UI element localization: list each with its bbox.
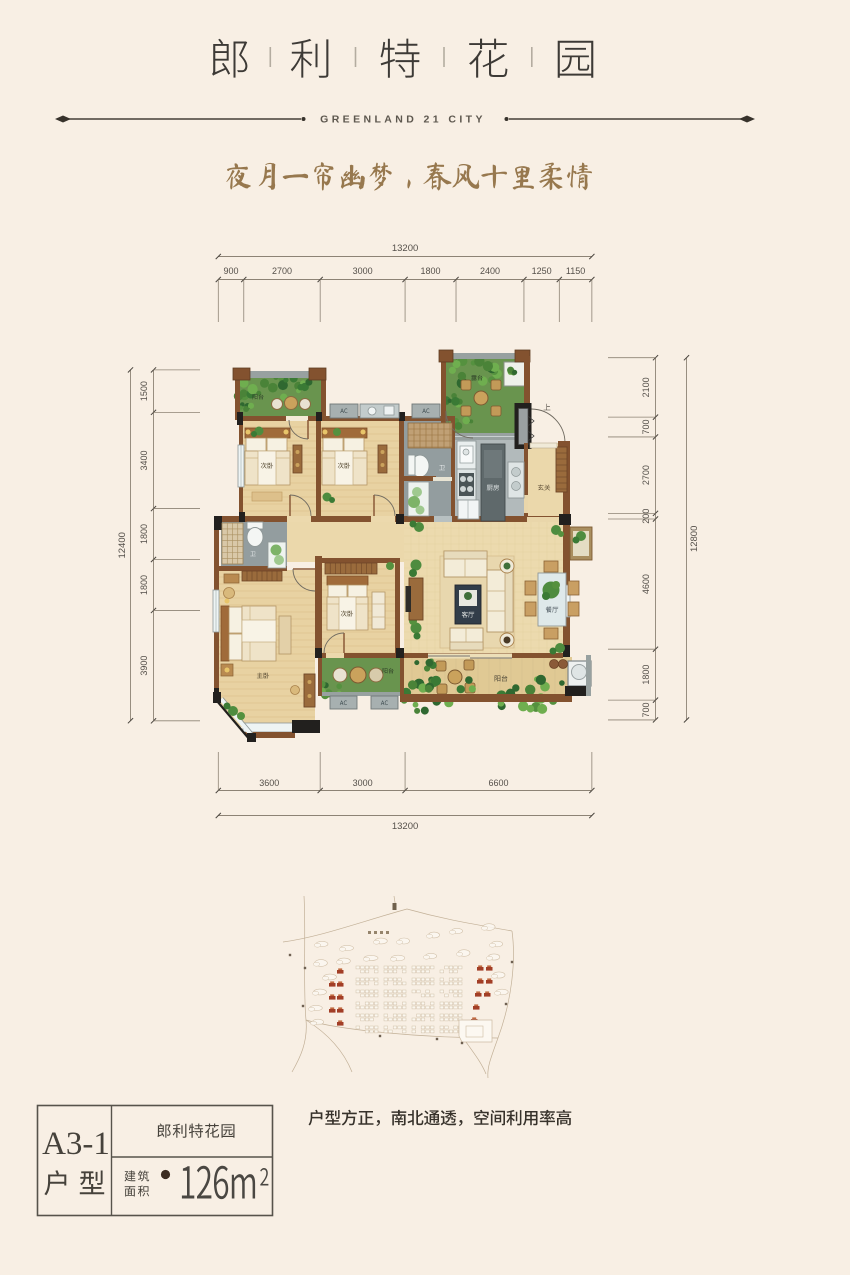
svg-text:GREENLAND 21 CITY: GREENLAND 21 CITY — [320, 114, 486, 126]
svg-text:1250: 1250 — [532, 266, 552, 276]
svg-text:3000: 3000 — [353, 778, 373, 788]
svg-text:900: 900 — [224, 266, 239, 276]
svg-text:12400: 12400 — [117, 532, 128, 558]
svg-text:6600: 6600 — [488, 778, 508, 788]
svg-text:1500: 1500 — [139, 381, 149, 401]
svg-text:1800: 1800 — [641, 665, 651, 685]
svg-text:3900: 3900 — [139, 656, 149, 676]
svg-text:2100: 2100 — [641, 377, 651, 397]
svg-text:A3-1: A3-1 — [42, 1126, 110, 1162]
svg-text:2700: 2700 — [641, 465, 651, 485]
svg-text:4600: 4600 — [641, 574, 651, 594]
svg-text:1150: 1150 — [566, 266, 585, 276]
svg-text:3000: 3000 — [353, 266, 373, 276]
svg-text:200: 200 — [641, 509, 651, 524]
svg-text:13200: 13200 — [392, 243, 418, 254]
svg-text:2400: 2400 — [480, 266, 500, 276]
svg-text:3400: 3400 — [139, 450, 149, 470]
svg-text:3600: 3600 — [259, 778, 279, 788]
svg-text:1800: 1800 — [139, 524, 149, 544]
svg-text:13200: 13200 — [392, 821, 418, 832]
svg-text:700: 700 — [641, 703, 651, 718]
svg-text:1800: 1800 — [139, 575, 149, 595]
svg-text:700: 700 — [641, 420, 651, 435]
svg-text:12800: 12800 — [689, 526, 700, 552]
svg-text:1800: 1800 — [421, 266, 441, 276]
svg-text:2700: 2700 — [272, 266, 292, 276]
